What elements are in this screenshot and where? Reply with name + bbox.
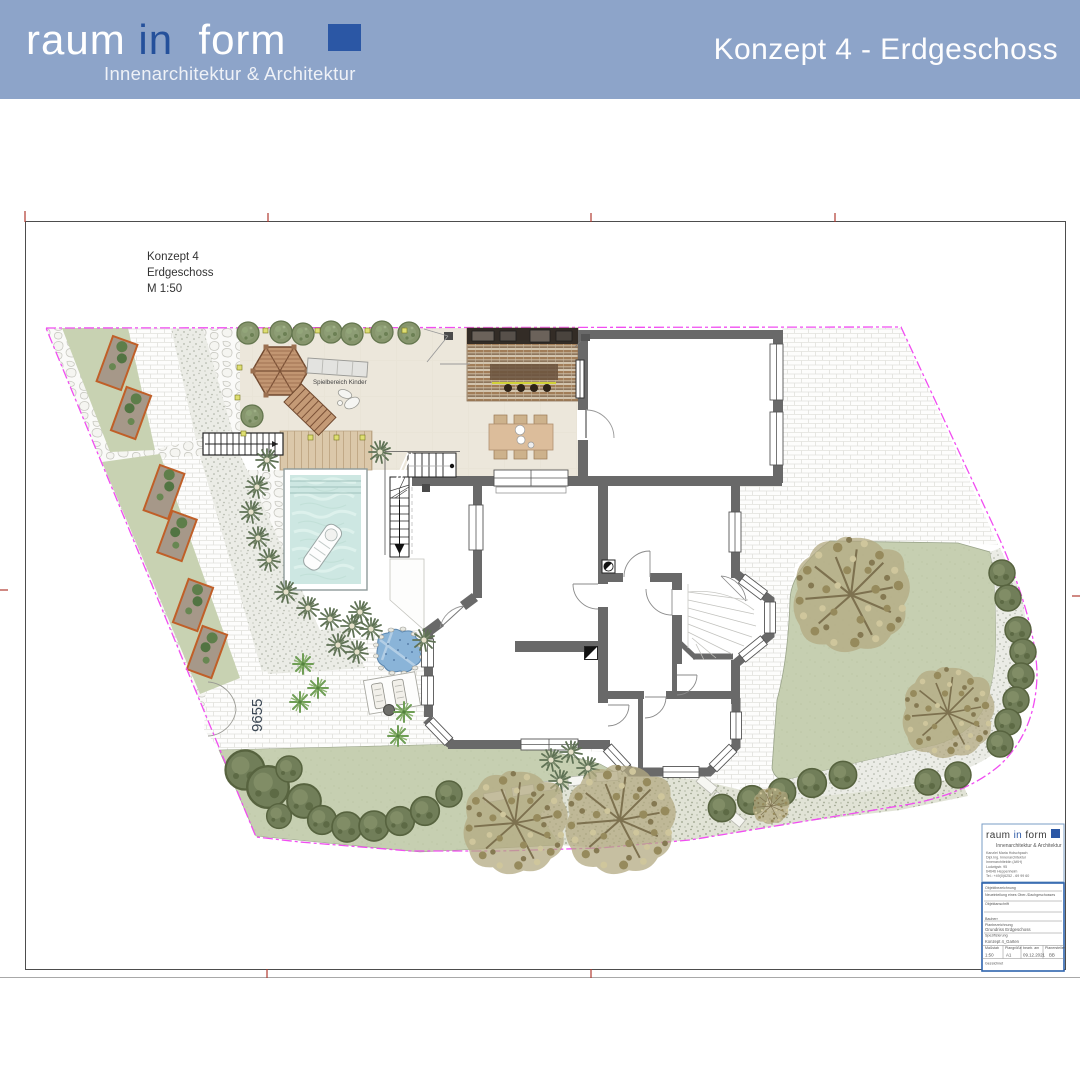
svg-text:A1: A1: [1006, 953, 1012, 958]
svg-text:Neueinteilung eines Ober-/Dac: Neueinteilung eines Ober-/Dachgeschosses: [985, 893, 1055, 897]
svg-text:9655: 9655: [249, 699, 266, 732]
svg-text:Objektanschrift: Objektanschrift: [985, 902, 1009, 906]
svg-text:Gezeichnet: Gezeichnet: [985, 962, 1003, 966]
svg-text:BB: BB: [1049, 953, 1055, 958]
svg-text:64646 Heppenheim: 64646 Heppenheim: [986, 869, 1017, 873]
svg-text:Innenarchitektin (AKH): Innenarchitektin (AKH): [986, 860, 1022, 864]
svg-text:bearb. am: bearb. am: [1023, 946, 1039, 950]
svg-text:Maßstab: Maßstab: [985, 946, 999, 950]
svg-text:Konzept 4_Garten: Konzept 4_Garten: [985, 939, 1020, 944]
svg-text:Konzept 4: Konzept 4: [147, 251, 199, 263]
svg-text:Spielbereich Kinder: Spielbereich Kinder: [313, 379, 367, 386]
svg-text:Objektbezeichnung: Objektbezeichnung: [985, 886, 1016, 890]
svg-text:Tel.: +49(0)6252 - 69 99 60: Tel.: +49(0)6252 - 69 99 60: [986, 874, 1029, 878]
svg-text:M 1:50: M 1:50: [147, 283, 182, 295]
svg-text:Dipl.Ing. Innenarchitektur: Dipl.Ing. Innenarchitektur: [986, 856, 1027, 860]
svg-text:Bauherr: Bauherr: [985, 917, 999, 921]
svg-text:Ludwigstr. 95: Ludwigstr. 95: [986, 865, 1007, 869]
svg-text:Grundriss Erdgeschoss: Grundriss Erdgeschoss: [985, 927, 1031, 932]
svg-text:09.12.2021: 09.12.2021: [1023, 953, 1046, 958]
svg-text:Planersteller: Planersteller: [1045, 946, 1066, 950]
svg-text:Spezifizierung: Spezifizierung: [985, 934, 1008, 938]
svg-text:Innenarchitektur & Architektur: Innenarchitektur & Architektur: [996, 843, 1062, 849]
svg-text:raum in form: raum in form: [986, 830, 1047, 841]
svg-text:Kanzlei Maria Holschpach: Kanzlei Maria Holschpach: [986, 851, 1028, 855]
svg-text:Erdgeschoss: Erdgeschoss: [147, 267, 214, 279]
svg-text:1:50: 1:50: [985, 953, 994, 958]
svg-text:Plangröße: Plangröße: [1005, 946, 1022, 950]
